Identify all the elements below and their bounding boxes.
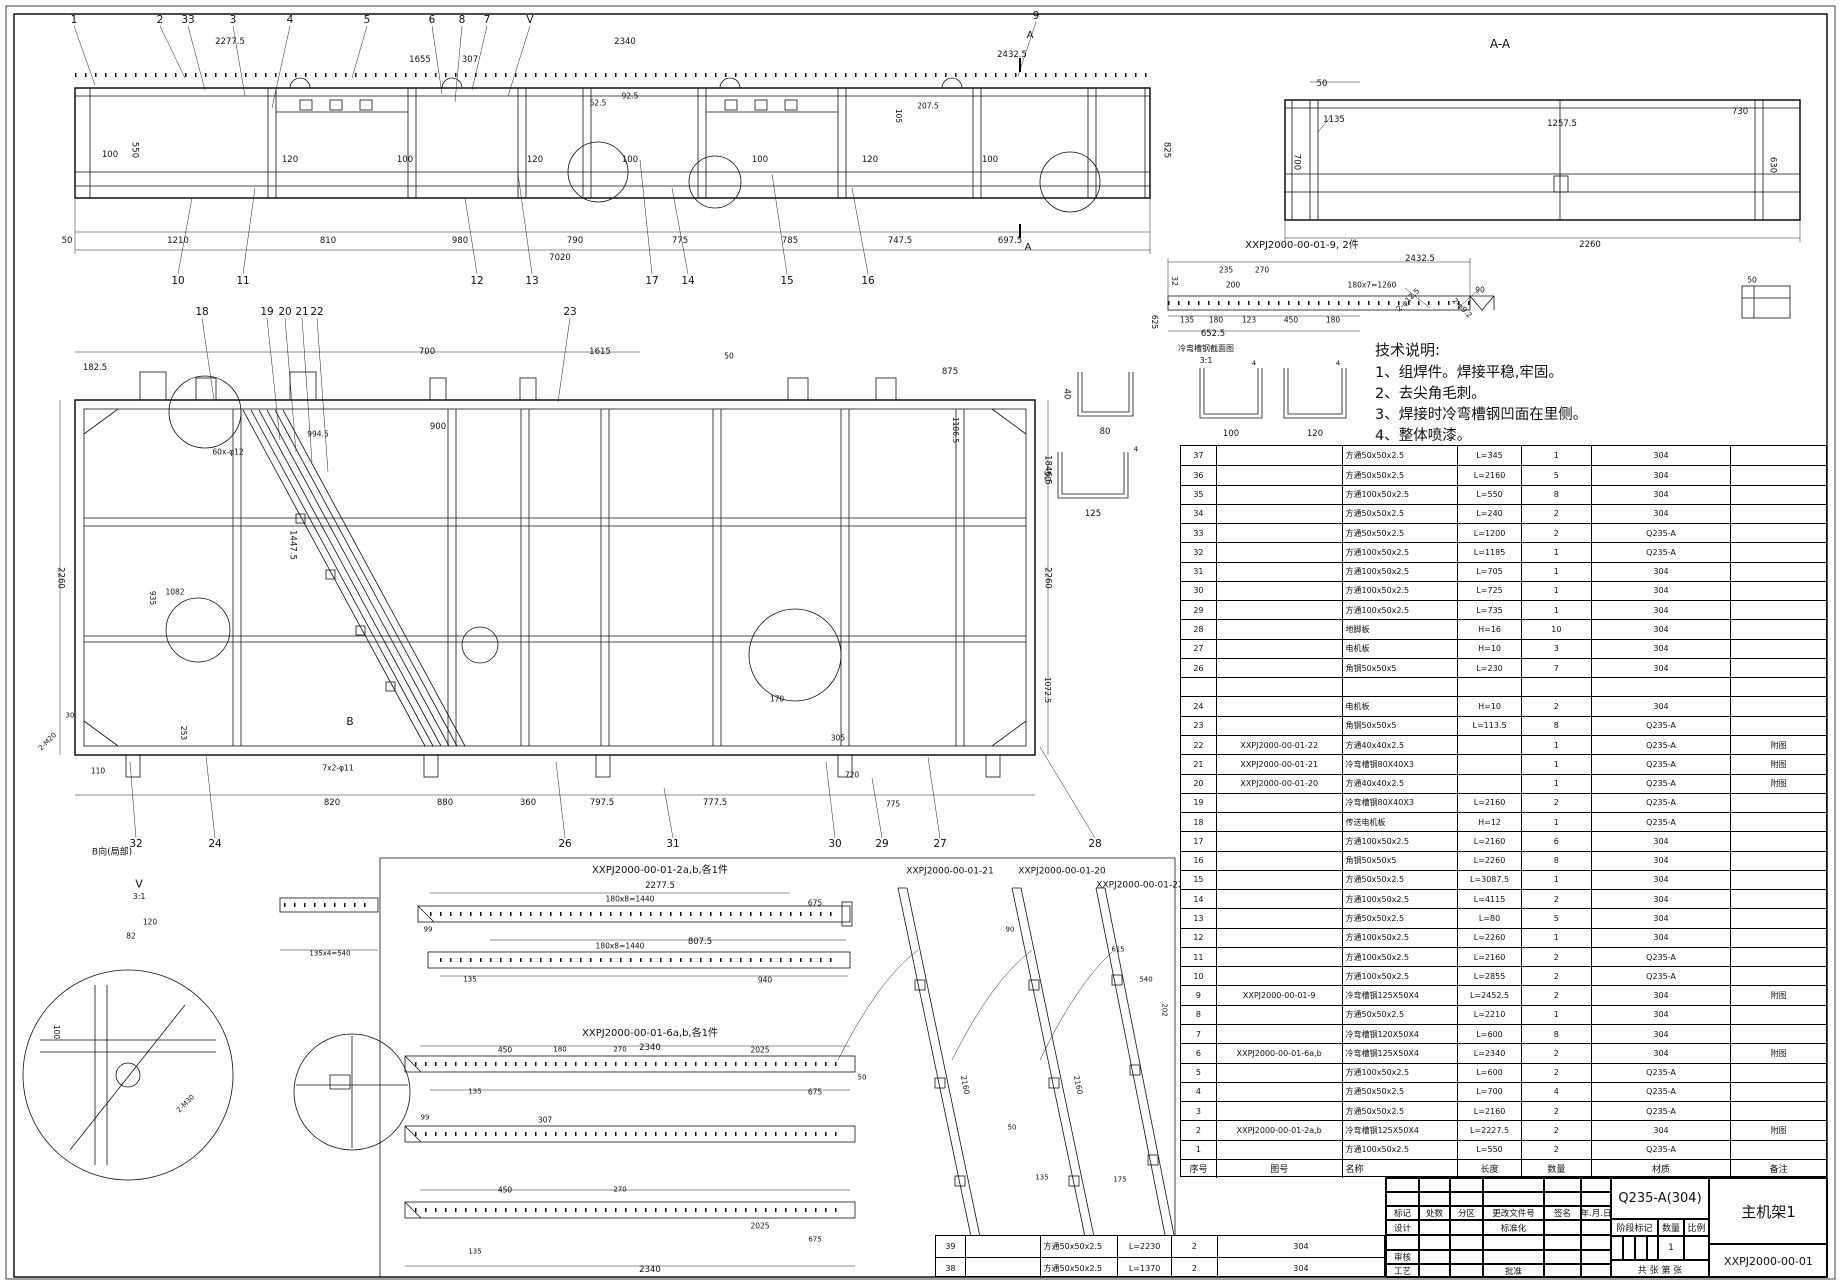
table-cell: 方通50x50x2.5: [1343, 505, 1459, 523]
bom-row: 36方通50x50x2.5L=21605304: [1181, 465, 1826, 484]
balloon-number: 12: [470, 276, 483, 287]
dimension-text: 100: [102, 151, 118, 160]
dimension-text: 50: [1317, 80, 1328, 89]
dimension-text: 700: [419, 348, 435, 357]
dimension-text: 82: [126, 932, 136, 940]
dimension-text: 110: [91, 767, 105, 775]
balloon-number: 26: [558, 839, 571, 850]
view-label: XXPJ2000-00-01-2a,b,各1件: [592, 866, 728, 876]
dimension-text: 2277.5: [215, 38, 245, 47]
table-cell: 方通50x50x2.5: [1343, 1083, 1459, 1101]
table-cell: L=4115: [1458, 890, 1522, 908]
table-cell: 10: [1181, 967, 1217, 985]
dimension-text: 777.5: [703, 799, 727, 808]
dimension-text: 135: [1035, 1175, 1048, 1182]
table-cell: 3: [1522, 640, 1592, 658]
title-block-cell: [1544, 1250, 1581, 1264]
dimension-text: 307: [462, 56, 478, 65]
scale-value: [1684, 1236, 1709, 1260]
table-cell: L=550: [1458, 1141, 1522, 1159]
table-cell: Q235-A: [1592, 794, 1732, 812]
table-cell: L=2260: [1458, 852, 1522, 870]
dimension-text: 697.5: [998, 237, 1022, 246]
table-cell: 34: [1181, 505, 1217, 523]
table-cell: [1731, 640, 1826, 658]
dimension-text: 90: [1006, 927, 1015, 934]
dimension-text: 675: [808, 899, 822, 907]
table-cell: 5: [1522, 466, 1592, 484]
bom-row: 10方通100x50x2.5L=28552Q235-A: [1181, 966, 1826, 985]
table-cell: [1731, 852, 1826, 870]
dimension-text: 775: [886, 800, 900, 808]
part-name-cell: 主机架1: [1709, 1178, 1828, 1244]
dimension-text: 50: [1008, 1125, 1017, 1132]
table-cell: 304: [1592, 486, 1732, 504]
bom-row: 13方通50x50x2.5L=805304: [1181, 908, 1826, 927]
balloon-number: 15: [780, 276, 793, 287]
table-cell: 304: [1592, 832, 1732, 850]
table-cell: 3: [1181, 1102, 1217, 1120]
table-cell: L=700: [1458, 1083, 1522, 1101]
table-cell: L=725: [1458, 582, 1522, 600]
dimension-text: 200: [1226, 281, 1240, 289]
table-cell: 名称: [1343, 1160, 1459, 1178]
dimension-text: 700: [1292, 154, 1301, 170]
balloon-number: 22: [310, 307, 323, 318]
table-cell: [1217, 852, 1343, 870]
table-cell: L=600: [1458, 1064, 1522, 1082]
stage-sub-cell: [1647, 1236, 1658, 1260]
dimension-text: 1655: [409, 56, 431, 65]
table-cell: [1592, 678, 1732, 696]
dimension-text: 180x7=1260: [1348, 281, 1397, 289]
view-label: A: [1027, 31, 1034, 41]
dimension-text: 135x4=540: [309, 951, 350, 958]
table-cell: 方通100x50x2.5: [1343, 967, 1459, 985]
bom-row: 15方通50x50x2.5L=3087.51304: [1181, 870, 1826, 889]
balloon-number: 28: [1088, 839, 1101, 850]
dimension-text: 450: [498, 1186, 512, 1194]
bom-row: 31方通100x50x2.5L=7051304: [1181, 562, 1826, 581]
table-cell: Q235-A: [1592, 524, 1732, 542]
dimension-text: 2025: [750, 1222, 769, 1230]
table-cell: 冷弯槽钢80X40X3: [1343, 755, 1459, 773]
table-cell: L=80: [1458, 909, 1522, 927]
table-cell: [1731, 890, 1826, 908]
table-cell: 304: [1218, 1258, 1384, 1278]
table-cell: 7: [1522, 659, 1592, 677]
table-cell: 28: [1181, 620, 1217, 638]
view-label: B向(局部): [92, 849, 132, 858]
table-cell: 14: [1181, 890, 1217, 908]
table-cell: L=2160: [1458, 832, 1522, 850]
table-cell: 方通50x50x2.5: [1041, 1258, 1119, 1278]
table-cell: 32: [1181, 543, 1217, 561]
table-cell: Q235-A: [1592, 1064, 1732, 1082]
table-cell: 2: [1522, 1121, 1592, 1139]
table-cell: 304: [1592, 505, 1732, 523]
title-block-cell: [1581, 1192, 1611, 1206]
table-cell: 2: [1172, 1258, 1218, 1278]
dimension-text: 170: [770, 695, 784, 703]
table-cell: L=1370: [1118, 1258, 1172, 1278]
cad-drawing-sheet: 1233345687V9A2277.5165530723402432.552.5…: [0, 0, 1841, 1285]
table-cell: 2: [1522, 986, 1592, 1004]
table-cell: 6: [1522, 832, 1592, 850]
balloon-number: 16: [861, 276, 874, 287]
dimension-text: 202: [1161, 1003, 1168, 1016]
table-cell: 方通100x50x2.5: [1343, 832, 1459, 850]
table-cell: XXPJ2000-00-01-6a,b: [1217, 1044, 1343, 1062]
bom-row: 23角钢50x50x5L=113.58Q235-A: [1181, 716, 1826, 735]
table-cell: Q235-A: [1592, 1102, 1732, 1120]
stage-sub-cell: [1611, 1236, 1623, 1260]
dimension-text: 270: [613, 1047, 626, 1054]
table-cell: 36: [1181, 466, 1217, 484]
dimension-text: 994.5: [307, 430, 328, 438]
dimension-text: 675: [808, 1088, 822, 1096]
dimension-text: 180: [1326, 316, 1340, 324]
dimension-text: 2260: [56, 567, 65, 589]
table-cell: [1343, 678, 1459, 696]
view-label: XXPJ2000-00-01-9, 2件: [1245, 241, 1359, 251]
table-cell: [1217, 948, 1343, 966]
dimension-text: 175: [1113, 1177, 1126, 1184]
title-block-cell: [1581, 1264, 1611, 1278]
bom-table: 37方通50x50x2.5L=345130436方通50x50x2.5L=216…: [1180, 445, 1827, 1177]
bom-row: 7冷弯槽钢120X50X4L=6008304: [1181, 1024, 1826, 1043]
table-cell: 38: [936, 1258, 966, 1278]
table-cell: Q235-A: [1592, 948, 1732, 966]
table-cell: 8: [1522, 486, 1592, 504]
dimension-text: 135: [463, 977, 476, 984]
table-cell: 4: [1522, 1083, 1592, 1101]
bom-row: 3方通50x50x2.5L=21602Q235-A: [1181, 1101, 1826, 1120]
tech-note-item: 2、去尖角毛刺。: [1375, 384, 1625, 405]
title-block-cell: [1450, 1264, 1483, 1278]
table-cell: [1217, 1025, 1343, 1043]
table-cell: [1731, 524, 1826, 542]
balloon-number: 9: [1033, 11, 1040, 22]
table-cell: 1: [1522, 543, 1592, 561]
view-label: XXPJ2000-00-01-20: [1018, 868, 1105, 877]
table-cell: L=230: [1458, 659, 1522, 677]
table-cell: 23: [1181, 717, 1217, 735]
table-cell: [1731, 486, 1826, 504]
table-cell: 2: [1522, 697, 1592, 715]
table-cell: [1731, 1102, 1826, 1120]
title-block-cell: [1450, 1178, 1483, 1192]
dimension-text: 4: [1252, 361, 1256, 368]
table-cell: 304: [1592, 929, 1732, 947]
table-cell: 冷弯槽钢120X50X4: [1343, 1025, 1459, 1043]
title-block-label: 更改文件号: [1483, 1206, 1544, 1220]
table-cell: [1217, 697, 1343, 715]
dimension-text: 207.5: [917, 102, 938, 110]
table-cell: [1731, 505, 1826, 523]
table-cell: 2: [1522, 1141, 1592, 1159]
title-block-cell: [1419, 1250, 1450, 1264]
table-cell: 附图: [1731, 736, 1826, 754]
balloon-number: 4: [287, 15, 294, 26]
table-cell: 2: [1522, 524, 1592, 542]
bom-row: 32方通100x50x2.5L=11851Q235-A: [1181, 542, 1826, 561]
balloon-number: 21: [295, 307, 308, 318]
table-cell: [1731, 948, 1826, 966]
dimension-text: 1615: [589, 348, 611, 357]
dimension-text: 180x8=1440: [606, 895, 655, 903]
table-cell: XXPJ2000-00-01-2a,b: [1217, 1121, 1343, 1139]
dimension-text: 120: [862, 156, 878, 165]
table-cell: H=10: [1458, 640, 1522, 658]
tech-note-item: 1、组焊件。焊接平稳,牢固。: [1375, 363, 1625, 384]
dimension-text: 180: [553, 1047, 566, 1054]
dimension-text: 32: [1170, 276, 1178, 286]
dimension-text: 652.5: [1201, 330, 1225, 339]
dimension-text: 790: [567, 237, 583, 246]
table-cell: 方通100x50x2.5: [1343, 948, 1459, 966]
table-cell: L=3087.5: [1458, 871, 1522, 889]
table-cell: 冷弯槽钢80X40X3: [1343, 794, 1459, 812]
table-cell: 1: [1522, 755, 1592, 773]
table-cell: Q235-A: [1592, 1083, 1732, 1101]
dimension-text: 615: [1111, 947, 1124, 954]
bom-row: 18传送电机板H=121Q235-A: [1181, 812, 1826, 831]
bom-row: 19冷弯槽钢80X40X3L=21602Q235-A: [1181, 793, 1826, 812]
scale-label: 比例: [1684, 1219, 1709, 1236]
table-cell: 方通100x50x2.5: [1343, 890, 1459, 908]
bom-row: 24电机板H=102304: [1181, 696, 1826, 715]
table-cell: 1: [1522, 582, 1592, 600]
table-cell: 304: [1592, 986, 1732, 1004]
table-cell: 2: [1522, 1064, 1592, 1082]
table-cell: 37: [1181, 446, 1217, 465]
table-cell: 8: [1522, 717, 1592, 735]
table-cell: 22: [1181, 736, 1217, 754]
table-cell: 31: [1181, 563, 1217, 581]
table-cell: 29: [1181, 601, 1217, 619]
title-block-cell: [1419, 1220, 1450, 1235]
title-block-cell: [1581, 1178, 1611, 1192]
dimension-text: 2340: [639, 1044, 661, 1053]
table-cell: 2: [1522, 505, 1592, 523]
table-cell: 9: [1181, 986, 1217, 1004]
table-cell: 26: [1181, 659, 1217, 677]
dimension-text: 450: [498, 1046, 512, 1054]
dimension-text: 880: [437, 799, 453, 808]
table-cell: [1731, 929, 1826, 947]
title-block-label: 设计: [1386, 1220, 1419, 1235]
table-cell: 1: [1522, 1006, 1592, 1024]
dimension-text: 305: [831, 734, 845, 742]
dimension-text: 2260: [1579, 241, 1601, 250]
bom-row: 2XXPJ2000-00-01-2a,b冷弯槽钢125X50X4L=2227.5…: [1181, 1120, 1826, 1139]
table-cell: 2: [1522, 1102, 1592, 1120]
table-cell: 304: [1592, 1006, 1732, 1024]
table-cell: 长度: [1458, 1160, 1522, 1178]
table-cell: 304: [1218, 1236, 1384, 1257]
balloon-number: 2: [157, 15, 164, 26]
bom-row: 33方通50x50x2.5L=12002Q235-A: [1181, 523, 1826, 542]
table-cell: 7: [1181, 1025, 1217, 1043]
title-block-cell: [1419, 1235, 1450, 1250]
table-cell: L=2160: [1458, 794, 1522, 812]
table-cell: Q235-A: [1592, 775, 1732, 793]
table-cell: 角钢50x50x5: [1343, 659, 1459, 677]
table-cell: 传送电机板: [1343, 813, 1459, 831]
table-cell: 2: [1522, 794, 1592, 812]
dimension-text: 270: [613, 1187, 626, 1194]
table-cell: 方通50x50x2.5: [1343, 466, 1459, 484]
table-cell: 8: [1181, 1006, 1217, 1024]
table-cell: 304: [1592, 852, 1732, 870]
dimension-text: 2260: [1043, 567, 1052, 589]
balloon-number: V: [526, 15, 533, 26]
table-cell: 方通50x50x2.5: [1343, 1006, 1459, 1024]
dimension-text: 1135: [1323, 116, 1345, 125]
dimension-text: 40: [1062, 389, 1071, 400]
table-cell: [1217, 929, 1343, 947]
dimension-text: 450: [1284, 316, 1298, 324]
table-cell: 304: [1592, 640, 1732, 658]
title-block-cell: [1419, 1192, 1450, 1206]
dimension-text: 1846.5: [1043, 455, 1052, 485]
table-cell: [1181, 678, 1217, 696]
table-cell: Q235-A: [1592, 755, 1732, 773]
dimension-text: 60x-φ12: [212, 448, 243, 456]
bom-row: 35方通100x50x2.5L=5508304: [1181, 485, 1826, 504]
bom-row: [1181, 677, 1826, 696]
dimension-text: 7020: [549, 254, 571, 263]
balloon-number: 7: [484, 15, 491, 26]
dimension-text: 730: [1732, 108, 1748, 117]
view-label: XXPJ2000-00-01-22: [1096, 882, 1183, 891]
title-block-label: 审核: [1386, 1250, 1419, 1264]
table-cell: 1: [1522, 929, 1592, 947]
table-cell: [1458, 755, 1522, 773]
dimension-text: 1447.5: [288, 530, 297, 560]
table-cell: L=1200: [1458, 524, 1522, 542]
table-cell: 附图: [1731, 986, 1826, 1004]
table-cell: 方通40x40x2.5: [1343, 775, 1459, 793]
table-cell: L=113.5: [1458, 717, 1522, 735]
table-cell: [1217, 582, 1343, 600]
table-cell: [1458, 678, 1522, 696]
dimension-text: 675: [808, 1237, 821, 1244]
qty-label: 数量: [1658, 1219, 1684, 1236]
bom-row: 8方通50x50x2.5L=22101304: [1181, 1005, 1826, 1024]
table-cell: [1217, 890, 1343, 908]
table-cell: 20: [1181, 775, 1217, 793]
table-cell: H=16: [1458, 620, 1522, 638]
view-label: XXPJ2000-00-01-6a,b,各1件: [582, 1029, 718, 1039]
dimension-text: 80: [1100, 428, 1111, 437]
table-cell: 304: [1592, 871, 1732, 889]
table-cell: [1731, 543, 1826, 561]
balloon-number: 24: [208, 839, 221, 850]
table-cell: Q235-A: [1592, 736, 1732, 754]
bom-row: 38方通50x50x2.5L=13702304: [936, 1257, 1384, 1278]
table-cell: 方通100x50x2.5: [1343, 601, 1459, 619]
table-cell: [1731, 446, 1826, 465]
table-cell: [966, 1258, 1041, 1278]
bom-row: 20XXPJ2000-00-01-20方通40x40x2.51Q235-A附图: [1181, 774, 1826, 793]
table-cell: 17: [1181, 832, 1217, 850]
table-cell: [1731, 620, 1826, 638]
table-cell: 冷弯槽钢125X50X4: [1343, 1044, 1459, 1062]
title-block-cell: [1450, 1220, 1483, 1235]
table-cell: [1731, 563, 1826, 581]
balloon-number: 5: [364, 15, 371, 26]
title-block-cell: [1386, 1192, 1419, 1206]
table-cell: 方通100x50x2.5: [1343, 582, 1459, 600]
stage-label: 阶段标记: [1611, 1219, 1658, 1236]
bom-row: 5方通100x50x2.5L=6002Q235-A: [1181, 1063, 1826, 1082]
table-cell: 304: [1592, 601, 1732, 619]
balloon-number: 30: [828, 839, 841, 850]
table-cell: 方通100x50x2.5: [1343, 1064, 1459, 1082]
dimension-text: 550: [130, 142, 139, 158]
table-cell: [1458, 736, 1522, 754]
table-cell: 11: [1181, 948, 1217, 966]
dimension-text: 135: [1180, 316, 1194, 324]
title-block-cell: [1450, 1250, 1483, 1264]
table-cell: 附图: [1731, 755, 1826, 773]
dimension-text: 2432.5: [1405, 255, 1435, 264]
dimension-text: 797.5: [590, 799, 614, 808]
table-cell: 2: [1172, 1236, 1218, 1257]
table-cell: [1731, 967, 1826, 985]
dimension-text: 120: [1307, 430, 1323, 439]
table-cell: [1217, 524, 1343, 542]
dimension-text: 1186.5: [951, 417, 959, 443]
balloon-number: B: [346, 717, 353, 728]
table-cell: [1731, 1006, 1826, 1024]
table-cell: L=1185: [1458, 543, 1522, 561]
technical-notes-title: 技术说明:: [1375, 340, 1625, 361]
dimension-text: 825: [1162, 142, 1171, 158]
bom-row: 4方通50x50x2.5L=7004Q235-A: [1181, 1082, 1826, 1101]
dimension-text: 135: [468, 1089, 481, 1096]
extra-parts-table: 39方通50x50x2.5L=2230230438方通50x50x2.5L=13…: [935, 1235, 1385, 1277]
table-cell: 数量: [1522, 1160, 1592, 1178]
table-cell: [1217, 505, 1343, 523]
dimension-text: 935: [148, 591, 156, 605]
title-block: 标记处数分区更改文件号签名年.月.日设计标准化审核工艺批准 Q235-A(304…: [1385, 1177, 1827, 1277]
table-cell: 图号: [1217, 1160, 1343, 1178]
dimension-text: 100: [752, 156, 768, 165]
table-cell: 地脚板: [1343, 620, 1459, 638]
table-cell: [1731, 871, 1826, 889]
table-cell: [1217, 620, 1343, 638]
bom-header-row: 序号图号名称长度数量材质备注: [1181, 1159, 1826, 1178]
title-block-cell: [1386, 1235, 1419, 1250]
title-block-cell: [1450, 1192, 1483, 1206]
balloon-number: 20: [278, 307, 291, 318]
table-cell: 方通50x50x2.5: [1343, 909, 1459, 927]
dimension-text: 100: [52, 1025, 60, 1039]
title-block-cell: [1386, 1178, 1419, 1192]
table-cell: [1731, 794, 1826, 812]
table-cell: 方通100x50x2.5: [1343, 486, 1459, 504]
table-cell: 材质: [1592, 1160, 1732, 1178]
bom-row: 27电机板H=103304: [1181, 639, 1826, 658]
tech-note-item: 4、整体喷漆。: [1375, 426, 1625, 447]
table-cell: 方通100x50x2.5: [1343, 563, 1459, 581]
dimension-text: 980: [452, 237, 468, 246]
stage-sub-cell: [1635, 1236, 1647, 1260]
dimension-text: 100: [622, 156, 638, 165]
